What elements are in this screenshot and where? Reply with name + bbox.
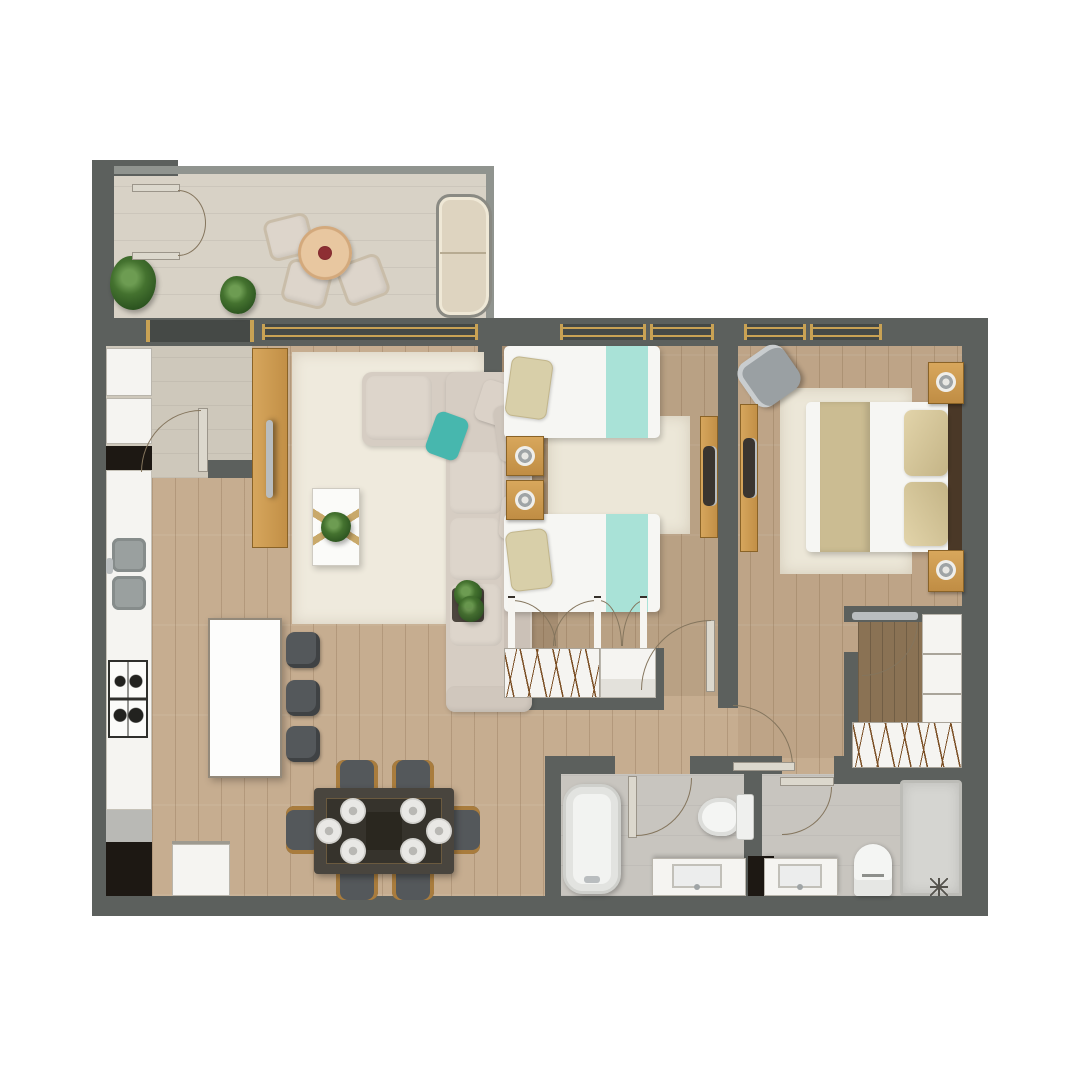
tall-cabinet <box>106 398 152 444</box>
sofa-cushion-1 <box>450 452 502 514</box>
kitchen-lower-cabinet <box>106 810 152 842</box>
bedroom-twin-window-1 <box>560 324 646 340</box>
twin-wardrobe-hangers <box>504 648 600 698</box>
wall-balcony-left <box>92 160 114 332</box>
twin-lamp-1 <box>515 446 535 466</box>
wall-right <box>962 318 988 916</box>
twin-pillow-top <box>504 355 554 420</box>
kitchen-sink-1 <box>112 538 146 572</box>
closet-door-post-2 <box>594 598 601 648</box>
sofa-chaise-cushion-1 <box>366 376 432 440</box>
living-room-sliding-window <box>262 324 478 340</box>
place-setting-3 <box>340 838 366 864</box>
sofa-cushion-2 <box>450 518 502 580</box>
place-setting-1 <box>340 798 366 824</box>
bar-stool-1 <box>286 632 320 668</box>
place-setting-5 <box>316 818 342 844</box>
closet-wardrobe-hangers <box>852 722 962 768</box>
place-setting-2 <box>400 798 426 824</box>
wall-entry-stub <box>208 460 252 478</box>
closet-door-post-1 <box>508 598 515 648</box>
wall-divider-stub <box>718 646 738 708</box>
twin-pillow-bottom <box>505 528 554 593</box>
wall-twin-master-divider <box>718 346 738 646</box>
kitchen-faucet <box>106 558 113 574</box>
bathtub-faucet <box>584 876 600 883</box>
kitchen-sink-2 <box>112 576 146 610</box>
floor-plan-canvas <box>0 0 1080 1080</box>
master-lamp-2 <box>936 560 956 580</box>
toilet-main-bowl <box>698 798 740 836</box>
toilet-ensuite-buttons <box>862 874 884 877</box>
flower-pot <box>318 246 332 260</box>
master-desk-chair <box>743 438 755 498</box>
twin-desk-chair <box>703 446 715 506</box>
closet-door-post-3 <box>640 598 647 648</box>
balcony-sofa-cushion-line <box>440 252 486 254</box>
place-setting-4 <box>400 838 426 864</box>
place-setting-6 <box>426 818 452 844</box>
closet-sliding-door <box>852 612 918 620</box>
fridge <box>106 348 152 396</box>
bar-stool-2 <box>286 680 320 716</box>
kitchen-island <box>208 618 282 778</box>
shower-drain <box>930 878 948 896</box>
dining-table-runner <box>366 812 402 850</box>
bedroom-master-window-2 <box>810 324 882 340</box>
washing-machine <box>172 844 230 896</box>
master-lamp-1 <box>936 372 956 392</box>
tv <box>266 420 273 498</box>
toilet-main-tank <box>736 794 754 840</box>
bar-stool-3 <box>286 726 320 762</box>
entry-window <box>146 320 254 342</box>
vanity-ensuite-faucet <box>797 884 803 890</box>
gas-stove <box>108 660 148 738</box>
balcony-door-leaf-bottom <box>132 252 180 260</box>
closet-shelving <box>922 614 962 730</box>
wall-bath-main-left <box>545 774 561 896</box>
master-pillow-1 <box>904 410 948 476</box>
ensuite-door-leaf <box>780 777 834 786</box>
bedroom-master-window-1 <box>744 324 806 340</box>
master-headboard <box>948 398 962 556</box>
balcony-parapet-top <box>114 166 494 174</box>
mint-runner-top <box>606 346 648 438</box>
vanity-main-faucet <box>694 884 700 890</box>
kitchen-dark-niche <box>106 842 152 896</box>
balcony-door-leaf-top <box>132 184 180 192</box>
toilet-ensuite <box>854 844 892 896</box>
master-pillow-2 <box>904 482 948 546</box>
wall-bottom <box>92 896 988 916</box>
wall-bath-main-top-left <box>545 756 615 774</box>
master-door-leaf <box>733 762 795 771</box>
wall-left <box>92 332 106 896</box>
twin-lamp-2 <box>515 490 535 510</box>
balcony-sofa <box>436 194 492 318</box>
tan-bed-runner <box>820 402 870 552</box>
bedroom-twin-window-2 <box>650 324 714 340</box>
kitchen-counter <box>106 470 152 810</box>
